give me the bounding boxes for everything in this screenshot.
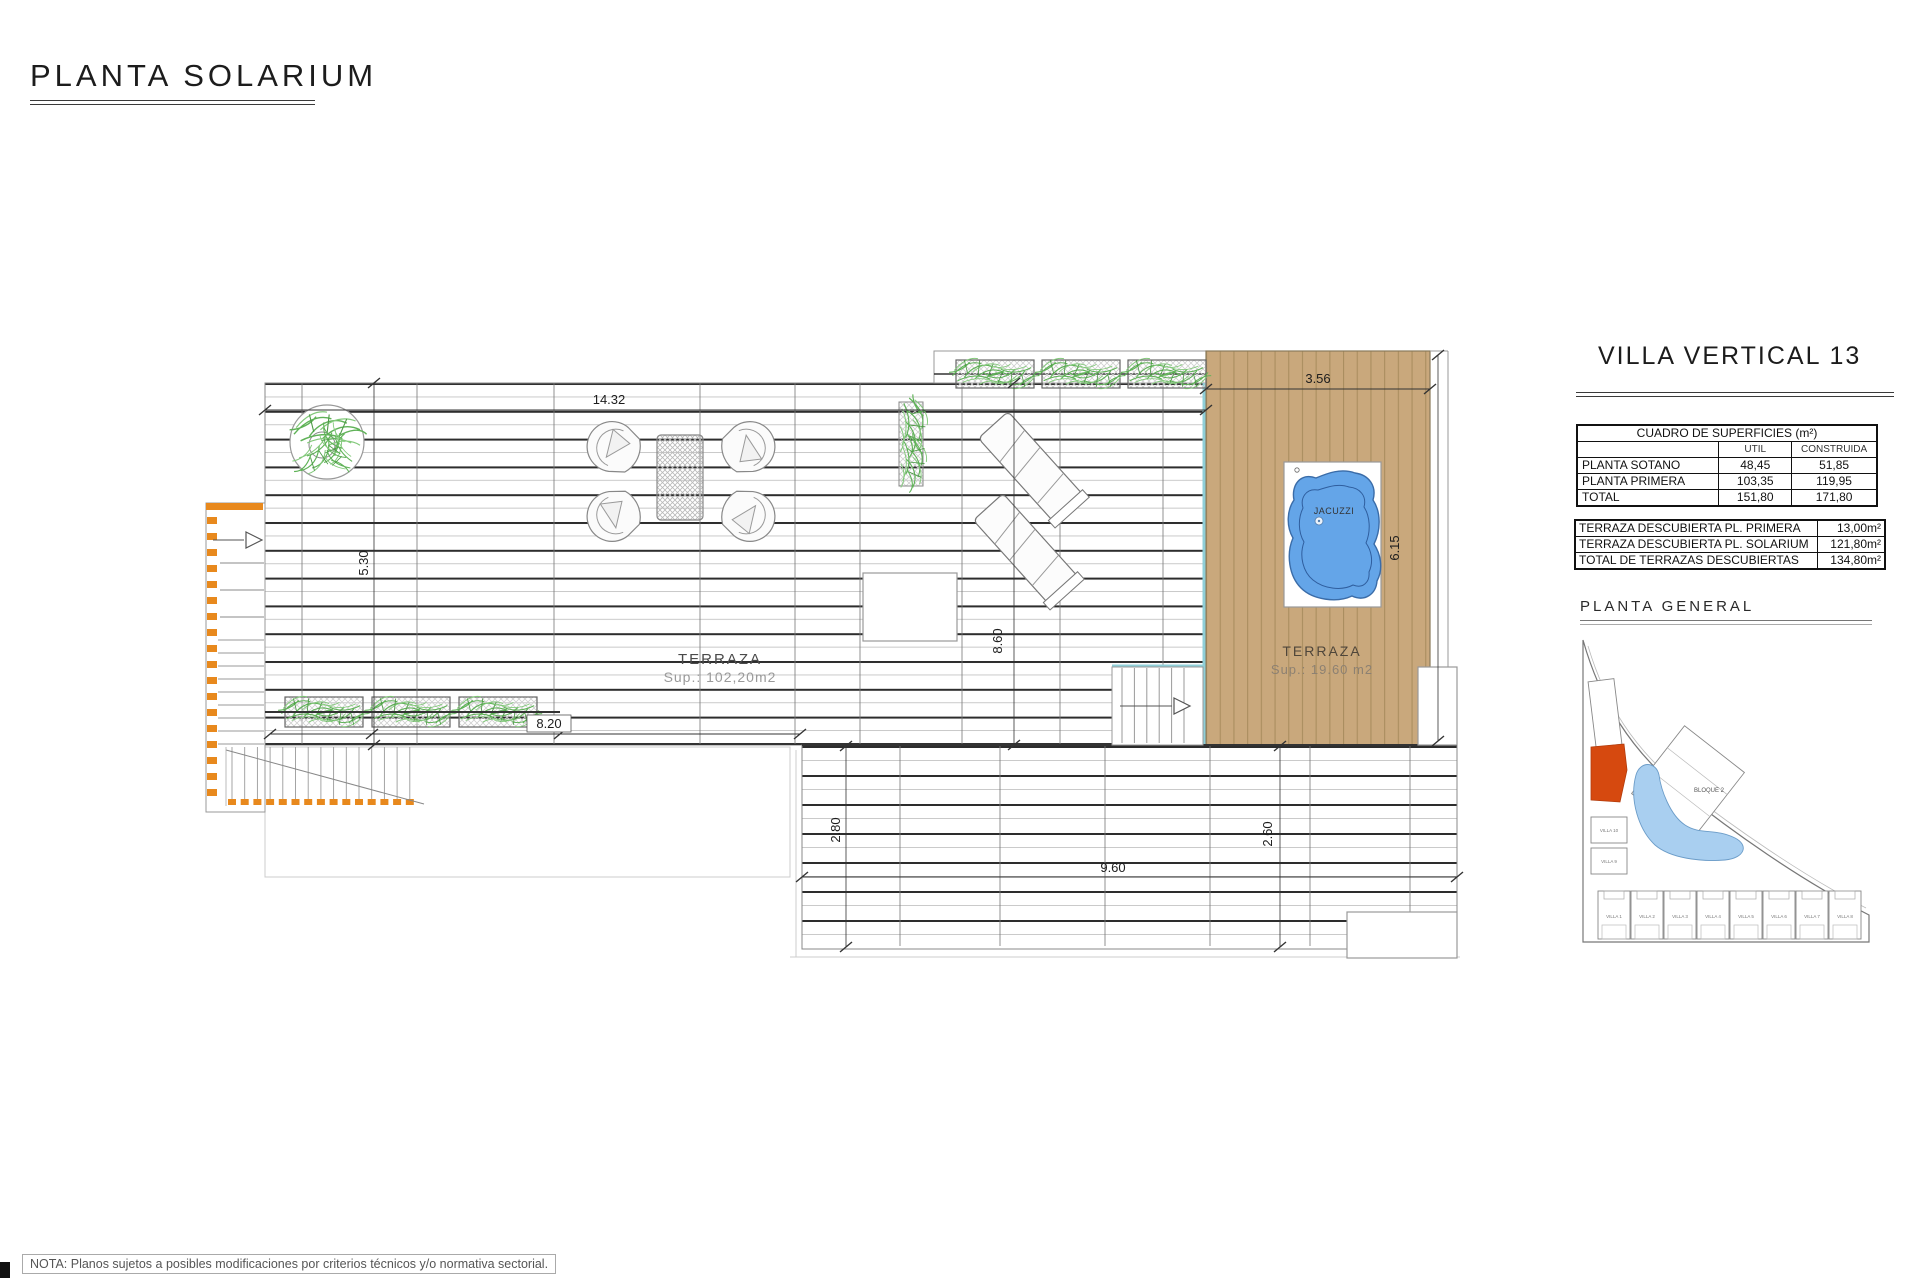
roof-opening — [863, 573, 957, 641]
tall-plant — [899, 394, 928, 492]
col-construida: CONSTRUIDA — [1792, 442, 1877, 458]
planta-general-underline — [1580, 620, 1872, 625]
site-villa-left-label: VILLA 10 — [1600, 828, 1619, 833]
dim-height-lower-right: 2.60 — [1260, 821, 1275, 846]
plan-sheet: JACUZZI 14.32 3.56 — [0, 0, 1920, 1280]
planta-general-title: PLANTA GENERAL — [1580, 598, 1872, 615]
col-util: UTIL — [1719, 442, 1792, 458]
dim-height-left: 5.30 — [356, 550, 371, 575]
terraces-table: TERRAZA DESCUBIERTA PL. PRIMERA 13,00m² … — [1574, 519, 1886, 570]
jacuzzi-label: JACUZZI — [1314, 506, 1355, 516]
site-bloque2-label: BLOQUE 2 — [1694, 788, 1725, 794]
villa-title-block: VILLA VERTICAL 13 — [1598, 342, 1861, 371]
dim-width-deck: 3.56 — [1305, 371, 1330, 386]
svg-text:VILLA 4: VILLA 4 — [1705, 914, 1721, 919]
site-highlighted-building — [1591, 744, 1627, 802]
main-terrace-area: Sup.: 102,20m2 — [664, 669, 777, 685]
svg-text:VILLA 5: VILLA 5 — [1738, 914, 1754, 919]
deck-terrace-area: Sup.: 19.60 m2 — [1271, 662, 1373, 677]
sheet-title-block: PLANTA SOLARIUM — [30, 58, 377, 105]
dim-height-deck: 6.15 — [1387, 535, 1402, 560]
table-row: PLANTA SOTANO 48,45 51,85 — [1577, 458, 1877, 474]
stairs-orange-bar — [206, 503, 263, 510]
dim-width-planters: 8.20 — [536, 716, 561, 731]
main-terrace-label: TERRAZA — [678, 651, 762, 668]
svg-text:VILLA 7: VILLA 7 — [1804, 914, 1820, 919]
dim-height-mid: 8.60 — [990, 628, 1005, 653]
title-underline — [30, 100, 315, 105]
table-row: TOTAL 151,80 171,80 — [1577, 490, 1877, 507]
jacuzzi: JACUZZI — [1284, 462, 1381, 607]
floor-below-outline — [265, 747, 790, 877]
table-row: TOTAL DE TERRAZAS DESCUBIERTAS 134,80m² — [1575, 553, 1885, 570]
lower-notch-bottom-right — [1347, 912, 1457, 958]
dining-table — [657, 435, 703, 520]
svg-text:VILLA 8: VILLA 8 — [1837, 914, 1853, 919]
deck-notch-right — [1418, 667, 1457, 745]
stairs-left — [206, 503, 265, 812]
svg-text:VILLA 2: VILLA 2 — [1639, 914, 1655, 919]
table-row: TERRAZA DESCUBIERTA PL. PRIMERA 13,00m² — [1575, 520, 1885, 537]
planta-general-block: PLANTA GENERAL — [1580, 598, 1872, 625]
villa-title: VILLA VERTICAL 13 — [1598, 342, 1861, 371]
surfaces-table: CUADRO DE SUPERFICIES (m²) UTIL CONSTRUI… — [1576, 424, 1878, 507]
villa-title-underline — [1576, 392, 1894, 397]
corner-mark — [0, 1262, 10, 1278]
svg-text:VILLA 6: VILLA 6 — [1771, 914, 1787, 919]
svg-text:VILLA 1: VILLA 1 — [1606, 914, 1622, 919]
svg-text:VILLA 3: VILLA 3 — [1672, 914, 1688, 919]
jacuzzi-water — [1288, 471, 1380, 600]
surfaces-table-title: CUADRO DE SUPERFICIES (m²) — [1577, 425, 1877, 442]
floor-plan-drawing: JACUZZI 14.32 3.56 — [0, 0, 1920, 1280]
table-row: PLANTA PRIMERA 103,35 119,95 — [1577, 474, 1877, 490]
note-box: NOTA: Planos sujetos a posibles modifica… — [22, 1254, 556, 1274]
table-row: TERRAZA DESCUBIERTA PL. SOLARIUM 121,80m… — [1575, 537, 1885, 553]
site-plan: BLOQUE 2 VILLA 10 VILLA 9 VILLA 1 VILLA … — [1583, 640, 1869, 942]
dim-height-lower-left: 2.80 — [828, 817, 843, 842]
dim-width-lower: 9.60 — [1100, 860, 1125, 875]
stairs-mid — [1112, 667, 1203, 745]
deck-terrace-label: TERRAZA — [1282, 643, 1361, 659]
site-villa-left-label: VILLA 9 — [1601, 859, 1617, 864]
dim-width-main: 14.32 — [593, 392, 626, 407]
page-title: PLANTA SOLARIUM — [30, 58, 377, 94]
